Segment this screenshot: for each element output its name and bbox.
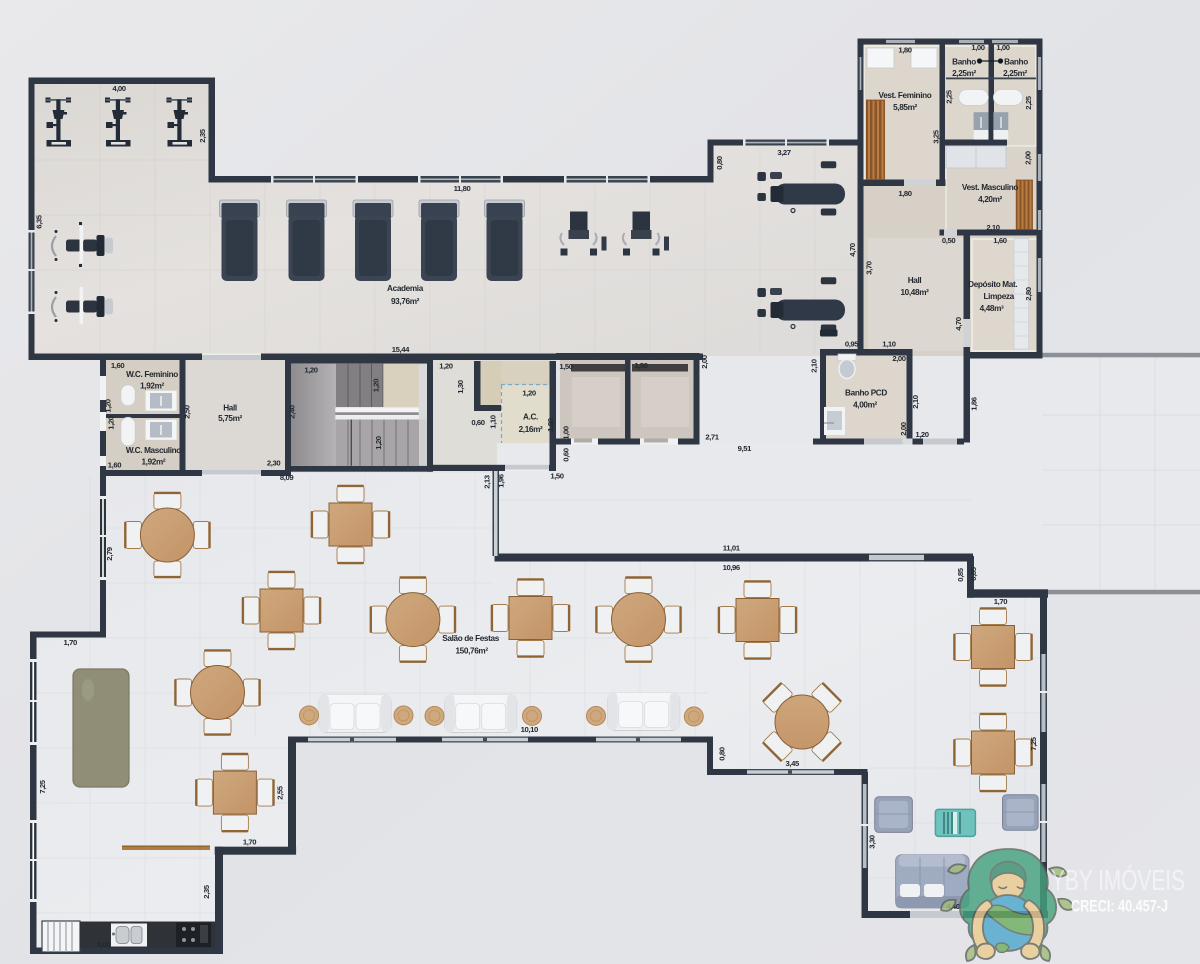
svg-text:0,50: 0,50: [942, 236, 955, 245]
svg-text:150,76m²: 150,76m²: [455, 647, 488, 656]
svg-text:7,25: 7,25: [1029, 736, 1038, 750]
svg-text:2,30: 2,30: [267, 459, 280, 468]
svg-text:93,76m²: 93,76m²: [391, 297, 420, 306]
svg-text:2,25m²: 2,25m²: [952, 69, 976, 78]
svg-text:Banho: Banho: [952, 58, 976, 67]
svg-text:5,75m²: 5,75m²: [218, 414, 242, 423]
svg-text:A.C.: A.C.: [523, 413, 538, 422]
svg-text:2,10: 2,10: [810, 359, 819, 372]
svg-text:2,25: 2,25: [945, 89, 954, 103]
svg-text:2,79: 2,79: [105, 547, 114, 560]
svg-text:1,20: 1,20: [374, 436, 383, 449]
svg-text:1,50: 1,50: [634, 361, 647, 370]
svg-text:Vest. Feminino: Vest. Feminino: [879, 91, 932, 100]
svg-text:Salão de Festas: Salão de Festas: [442, 634, 499, 643]
svg-text:Hall: Hall: [908, 276, 922, 285]
svg-text:1,80: 1,80: [898, 189, 911, 198]
svg-text:2,25m²: 2,25m²: [1003, 69, 1027, 78]
svg-text:2,55: 2,55: [276, 785, 285, 799]
svg-text:2,80: 2,80: [1024, 287, 1033, 300]
svg-text:2,00: 2,00: [700, 355, 709, 368]
svg-text:Vest. Masculino: Vest. Masculino: [962, 183, 1019, 192]
svg-text:5,85m²: 5,85m²: [893, 103, 917, 112]
svg-text:1,96: 1,96: [497, 474, 506, 487]
svg-text:10,10: 10,10: [521, 725, 538, 734]
svg-text:1,60: 1,60: [108, 461, 121, 470]
svg-text:0,85: 0,85: [956, 567, 965, 581]
svg-text:4,00: 4,00: [112, 84, 125, 93]
svg-text:4,00m²: 4,00m²: [853, 401, 877, 410]
svg-text:2,50: 2,50: [183, 405, 192, 418]
svg-text:1,70: 1,70: [243, 838, 256, 847]
svg-text:2,00: 2,00: [892, 354, 905, 363]
svg-text:1,60: 1,60: [111, 361, 124, 370]
svg-text:0,80: 0,80: [715, 156, 724, 169]
svg-text:0,85: 0,85: [969, 566, 978, 580]
svg-text:1,70: 1,70: [994, 597, 1007, 606]
svg-text:2,71: 2,71: [705, 433, 719, 442]
svg-text:1,20: 1,20: [915, 430, 928, 439]
svg-text:Hall: Hall: [223, 404, 237, 413]
svg-text:1,00: 1,00: [562, 426, 571, 439]
svg-text:1,00: 1,00: [996, 43, 1009, 52]
svg-text:1,20: 1,20: [372, 379, 381, 392]
svg-text:1,20: 1,20: [522, 389, 535, 398]
svg-text:4,00: 4,00: [97, 940, 110, 949]
svg-text:2,10: 2,10: [911, 395, 920, 408]
svg-text:1,80: 1,80: [546, 418, 555, 431]
svg-text:6,35: 6,35: [35, 214, 44, 228]
svg-text:0,60: 0,60: [562, 448, 571, 461]
svg-text:2,35: 2,35: [202, 884, 211, 898]
svg-text:9,51: 9,51: [738, 444, 752, 453]
svg-text:2,00: 2,00: [1024, 151, 1033, 164]
svg-text:1,50: 1,50: [559, 362, 572, 371]
svg-text:1,80: 1,80: [898, 46, 911, 55]
svg-text:Depósito Mat.: Depósito Mat.: [968, 280, 1017, 289]
svg-text:W.C. Feminino: W.C. Feminino: [126, 370, 178, 379]
svg-text:1,20: 1,20: [439, 362, 452, 371]
svg-text:YBY IMÓVEIS: YBY IMÓVEIS: [1051, 864, 1185, 897]
svg-text:4,70: 4,70: [954, 317, 963, 330]
svg-text:0,95: 0,95: [845, 340, 859, 349]
svg-text:1,50: 1,50: [550, 472, 563, 481]
svg-text:3,30: 3,30: [868, 835, 877, 848]
svg-text:1,20: 1,20: [104, 399, 113, 412]
svg-text:2,35: 2,35: [198, 128, 207, 142]
svg-text:3,25: 3,25: [932, 129, 941, 143]
svg-text:4,70: 4,70: [848, 243, 857, 256]
svg-text:Banho PCD: Banho PCD: [845, 389, 887, 398]
svg-text:2,00: 2,00: [899, 422, 908, 435]
svg-text:1,70: 1,70: [64, 638, 77, 647]
svg-text:Banho: Banho: [1004, 58, 1028, 67]
svg-text:1,92m²: 1,92m²: [141, 458, 165, 467]
svg-text:11,01: 11,01: [723, 544, 741, 553]
svg-text:1,92m²: 1,92m²: [140, 382, 164, 391]
svg-text:3,70: 3,70: [865, 261, 874, 274]
svg-text:2,10: 2,10: [986, 223, 999, 232]
svg-text:W.C. Masculino: W.C. Masculino: [126, 446, 181, 455]
svg-text:3,45: 3,45: [786, 759, 800, 768]
svg-text:4,48m³: 4,48m³: [980, 304, 1004, 313]
svg-text:11,80: 11,80: [454, 184, 471, 193]
svg-text:2,13: 2,13: [483, 475, 492, 488]
svg-text:1,00: 1,00: [971, 43, 984, 52]
svg-text:0,60: 0,60: [471, 418, 484, 427]
svg-text:2,40: 2,40: [288, 405, 297, 418]
svg-text:10,48m²: 10,48m²: [900, 288, 929, 297]
svg-text:1,30: 1,30: [456, 380, 465, 393]
svg-text:7,25: 7,25: [38, 779, 47, 793]
svg-text:Academia: Academia: [387, 284, 424, 293]
svg-text:1,60: 1,60: [993, 236, 1006, 245]
svg-text:1,20: 1,20: [107, 416, 116, 429]
svg-text:10,96: 10,96: [723, 563, 740, 572]
svg-text:CRECI: 40.457-J: CRECI: 40.457-J: [1071, 898, 1168, 916]
svg-text:15,44: 15,44: [392, 345, 410, 354]
svg-text:1,20: 1,20: [304, 366, 317, 375]
svg-text:1,10: 1,10: [882, 340, 895, 349]
svg-text:4,20m²: 4,20m²: [978, 195, 1002, 204]
svg-text:2,25: 2,25: [1024, 95, 1033, 109]
svg-text:1,86: 1,86: [970, 397, 979, 410]
svg-text:Limpeza: Limpeza: [984, 292, 1015, 301]
svg-text:0,80: 0,80: [718, 747, 727, 760]
svg-text:3,27: 3,27: [777, 148, 790, 157]
svg-text:1,10: 1,10: [489, 415, 498, 428]
svg-text:8,09: 8,09: [280, 473, 293, 482]
svg-text:2,16m²: 2,16m²: [519, 425, 543, 434]
